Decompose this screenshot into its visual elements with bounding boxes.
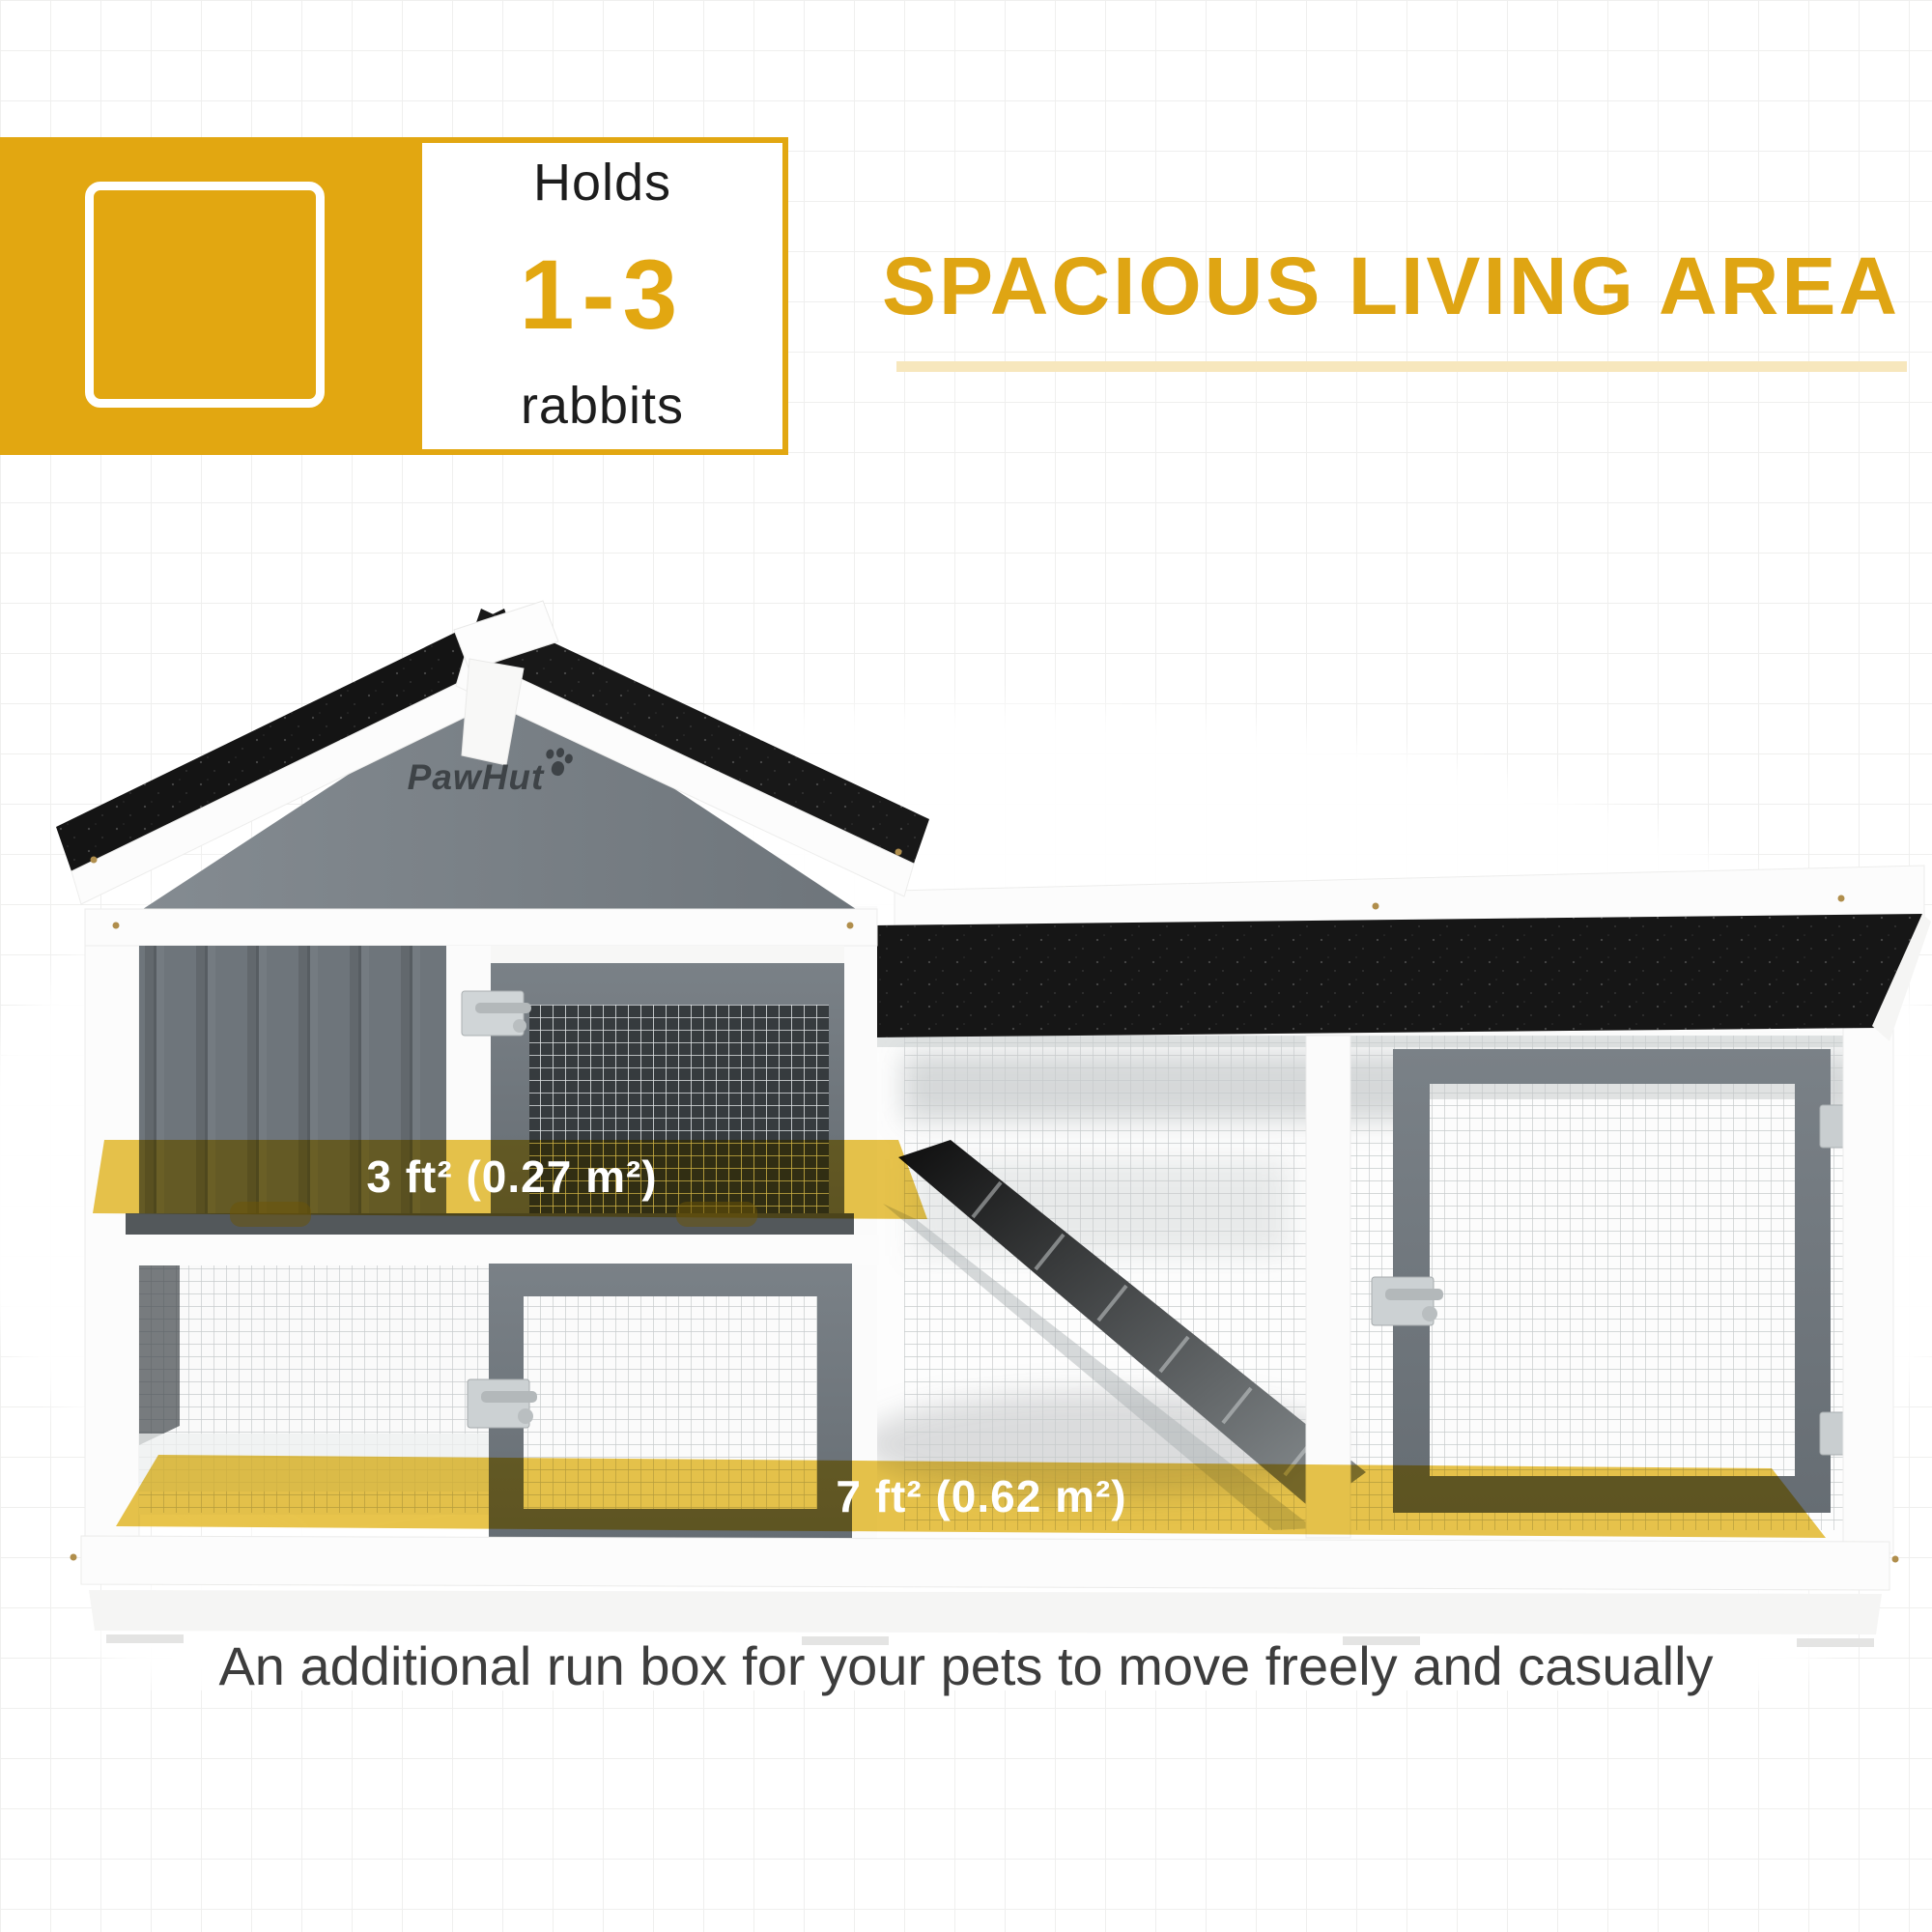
run-roof — [872, 866, 1931, 1041]
brand-logo-text: PawHut — [408, 757, 545, 797]
page-title: SPACIOUS LIVING AREA — [860, 241, 1922, 330]
run-mid-post — [1306, 1036, 1350, 1538]
capacity-panel: Holds 1-3 rabbits — [422, 143, 782, 449]
capacity-badge: Holds 1-3 rabbits — [0, 137, 788, 455]
lower-area-label: 7 ft² (0.62 m²) — [518, 1470, 1445, 1522]
capacity-animal-label: rabbits — [521, 376, 684, 436]
run-corner-post — [1843, 1028, 1893, 1553]
product-feature-page: { "capacity_badge": { "holds_label": "Ho… — [0, 0, 1932, 1932]
brand-logo: PawHut — [394, 757, 578, 798]
paw-print-icon — [551, 760, 566, 778]
square-outline-icon — [85, 182, 325, 408]
upper-area-label: 3 ft² (0.27 m²) — [145, 1151, 879, 1203]
capacity-range: 1-3 — [520, 246, 685, 343]
caption-text: An additional run box for your pets to m… — [58, 1634, 1874, 1697]
capacity-holds-label: Holds — [533, 153, 671, 213]
run-door — [1372, 1049, 1847, 1513]
headline-underline — [896, 361, 1907, 372]
run-section — [860, 866, 1931, 1553]
